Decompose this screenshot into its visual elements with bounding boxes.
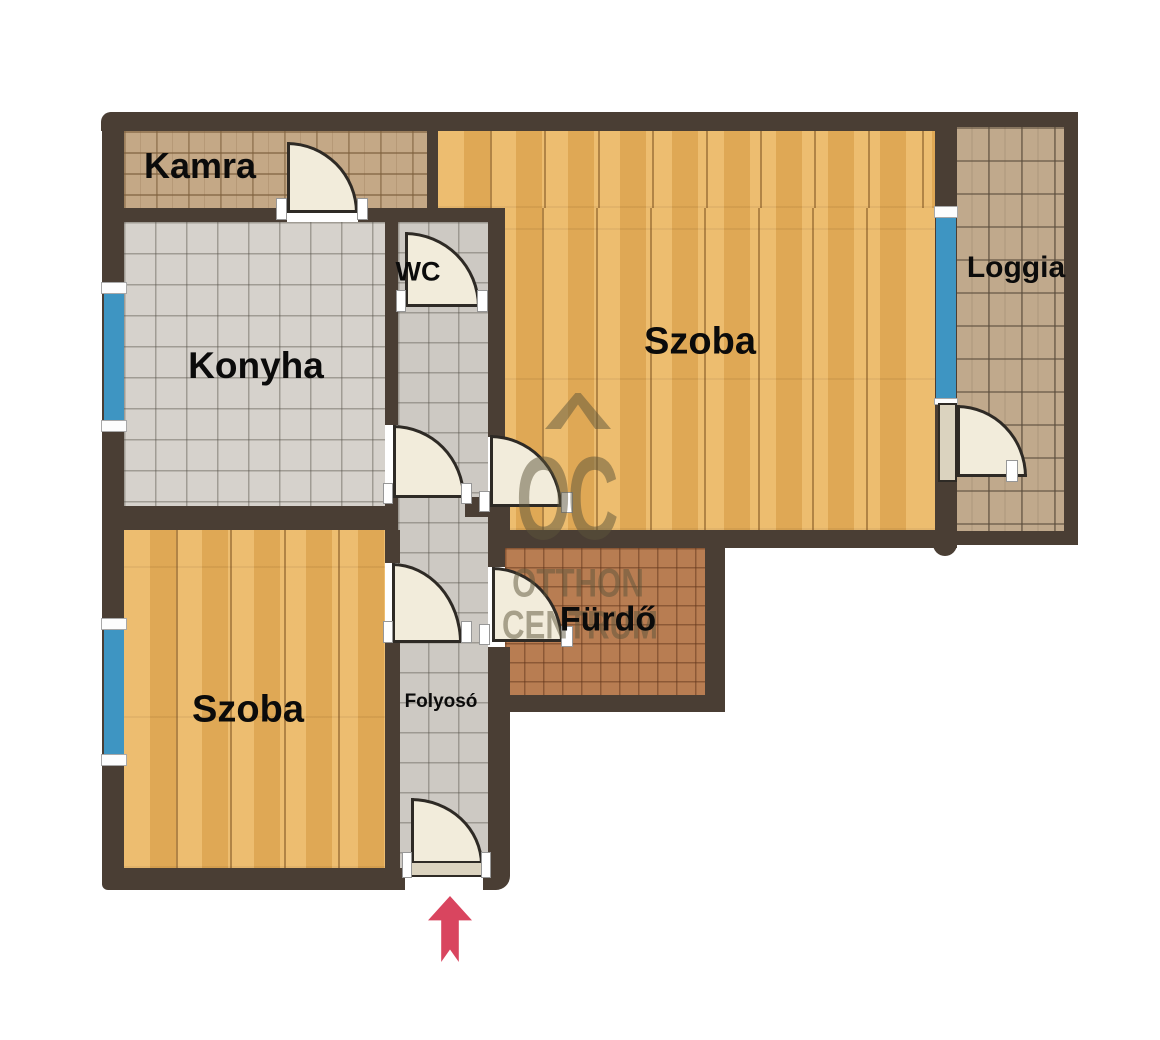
jamb bbox=[1006, 460, 1018, 482]
jamb bbox=[402, 852, 412, 878]
wall-left bbox=[102, 112, 124, 890]
wall-kamra-bottom-a bbox=[102, 208, 287, 222]
wall-furdo-bottom bbox=[488, 695, 725, 712]
jamb bbox=[461, 483, 472, 504]
jamb bbox=[479, 491, 490, 512]
window-loggia-cap bbox=[934, 206, 958, 218]
wall-hall-right-a bbox=[488, 548, 505, 567]
wall-loggia-top bbox=[957, 112, 1078, 127]
wall-endcap bbox=[933, 540, 957, 556]
window-szoba-also-cap bbox=[101, 618, 127, 630]
wall-bottom-left bbox=[102, 868, 405, 890]
wall-loggia-bottom bbox=[955, 531, 1078, 545]
floorplan-canvas: OC OTTHON CENTRUM Kamra Konyha WC Szoba … bbox=[0, 0, 1160, 1040]
window-konyha-cap bbox=[101, 420, 127, 432]
jamb bbox=[479, 624, 490, 645]
jamb bbox=[481, 852, 491, 878]
watermark-monogram: OC bbox=[516, 440, 615, 558]
wall-konyha-bottom bbox=[102, 506, 398, 530]
label-konyha: Konyha bbox=[188, 345, 324, 387]
wall-konyha-right-a bbox=[385, 222, 398, 425]
room-folyoso-wc-floor bbox=[398, 222, 488, 868]
door-entrance-leaf bbox=[409, 861, 485, 877]
label-folyoso: Folyosó bbox=[405, 691, 478, 713]
entrance-arrow-icon bbox=[428, 896, 472, 962]
label-szoba-also: Szoba bbox=[192, 689, 304, 732]
wall-szoba2-right-b bbox=[385, 643, 400, 868]
room-szoba-felso-floor bbox=[438, 131, 935, 208]
label-szoba-felso: Szoba bbox=[644, 321, 756, 364]
jamb bbox=[461, 621, 472, 643]
window-konyha bbox=[104, 294, 124, 420]
wall-top bbox=[101, 112, 957, 131]
label-wc: WC bbox=[396, 257, 441, 288]
wall-szoba2-right-a bbox=[385, 530, 400, 563]
wall-loggia-right bbox=[1064, 112, 1078, 545]
wall-hall-right-b bbox=[488, 647, 510, 868]
jamb bbox=[477, 290, 488, 312]
jamb bbox=[383, 621, 393, 643]
label-kamra: Kamra bbox=[144, 145, 256, 187]
label-furdo: Fürdő bbox=[560, 601, 656, 640]
door-loggia-leaf bbox=[938, 403, 957, 482]
jamb bbox=[276, 198, 287, 220]
window-szoba-also bbox=[104, 630, 124, 754]
wall-furdo-right bbox=[705, 535, 725, 712]
label-loggia: Loggia bbox=[967, 251, 1065, 285]
jamb bbox=[396, 290, 406, 312]
window-loggia bbox=[936, 218, 956, 398]
window-szoba-also-cap bbox=[101, 754, 127, 766]
jamb bbox=[357, 198, 368, 220]
wall-lobby-right bbox=[488, 322, 505, 437]
wall-wc-right bbox=[488, 208, 505, 322]
jamb bbox=[383, 483, 393, 504]
window-konyha-cap bbox=[101, 282, 127, 294]
wall-kamra-right bbox=[427, 131, 438, 222]
